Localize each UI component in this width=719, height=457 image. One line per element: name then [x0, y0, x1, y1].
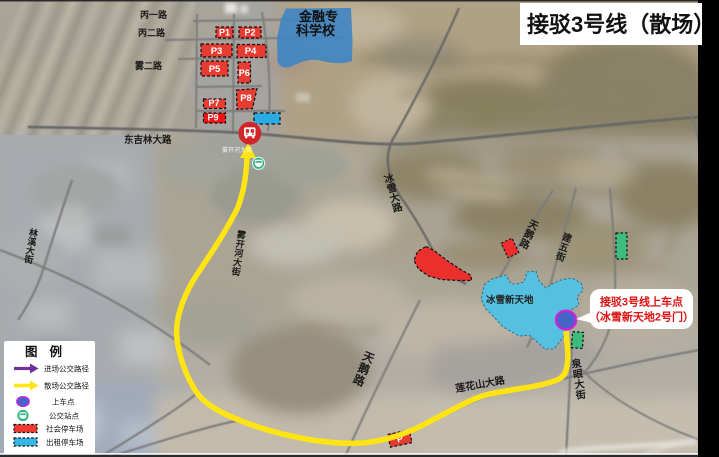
svg-text:东吉林大路: 东吉林大路 [124, 134, 172, 146]
svg-text:P4: P4 [245, 46, 257, 57]
svg-text:P5: P5 [209, 64, 221, 75]
svg-text:散场公交路径: 散场公交路径 [44, 381, 89, 391]
svg-text:（冰雪新天地2号门）: （冰雪新天地2号门） [589, 310, 694, 324]
svg-text:上车点: 上车点 [52, 397, 75, 407]
svg-text:P6: P6 [239, 68, 250, 78]
svg-text:社会停车场: 社会停车场 [46, 424, 84, 434]
svg-text:雾开河大街: 雾开河大街 [222, 146, 252, 154]
svg-text:P2: P2 [244, 28, 255, 38]
svg-text:P8: P8 [240, 93, 252, 104]
svg-text:冰雪新天地: 冰雪新天地 [486, 294, 534, 306]
svg-text:P1: P1 [219, 28, 230, 38]
svg-text:丙一路: 丙一路 [140, 9, 168, 20]
svg-text:P9: P9 [207, 113, 218, 123]
svg-text:接驳3号线上车点: 接驳3号线上车点 [600, 295, 683, 309]
svg-text:接驳3号线（散场）: 接驳3号线（散场） [527, 12, 715, 37]
svg-text:P7: P7 [208, 98, 219, 108]
svg-text:进场公交路径: 进场公交路径 [44, 364, 89, 374]
svg-text:科学校: 科学校 [296, 23, 336, 38]
svg-text:丙二路: 丙二路 [138, 27, 166, 38]
svg-text:雾二路: 雾二路 [134, 60, 163, 71]
svg-text:金融专: 金融专 [298, 9, 338, 24]
svg-text:公交站点: 公交站点 [49, 411, 79, 421]
svg-text:P3: P3 [211, 46, 223, 57]
svg-text:出租停车场: 出租停车场 [46, 437, 84, 447]
